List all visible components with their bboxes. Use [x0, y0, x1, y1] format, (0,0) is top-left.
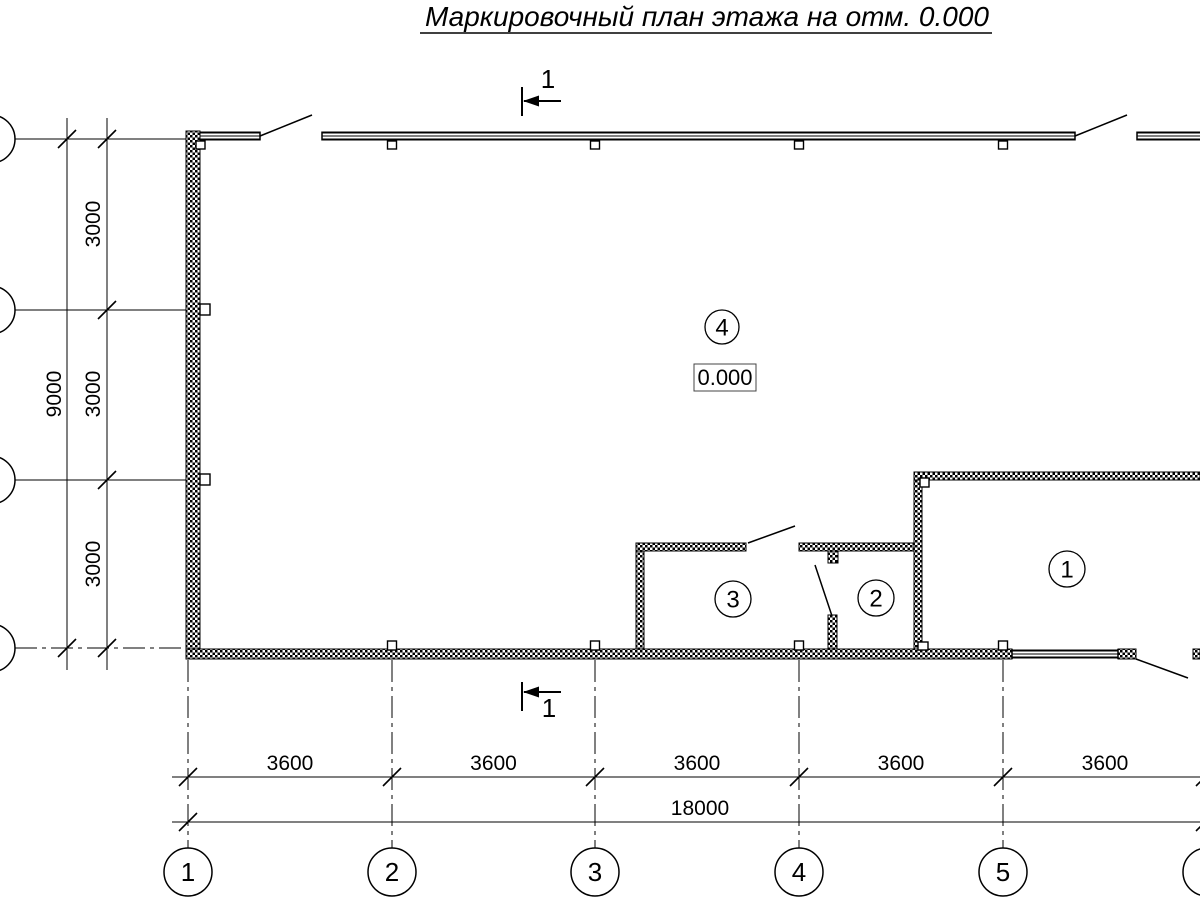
- wall-junction-post: [591, 641, 600, 650]
- room2-wall-top: [799, 543, 914, 551]
- left-dimensions: 3000 3000 3000 9000: [43, 118, 116, 670]
- door-jamb-lower: [828, 615, 837, 649]
- wall-junction-post: [200, 304, 210, 315]
- room-number: 1: [1060, 557, 1073, 584]
- bottom-window: [1012, 649, 1118, 659]
- room1-wall-top: [914, 472, 1200, 480]
- floor-plan-canvas: Маркировочный план этажа на отм. 0.000 3…: [0, 0, 1200, 900]
- wall-junction-post: [999, 641, 1008, 650]
- elevation-mark: 0.000: [694, 364, 756, 391]
- drawing-title: Маркировочный план этажа на отм. 0.000: [420, 1, 992, 33]
- wall-junction-post: [920, 478, 929, 487]
- column-axis-number: 2: [385, 857, 399, 887]
- room-number: 2: [869, 586, 882, 613]
- wall-junction-post: [388, 641, 397, 650]
- room2-door-leaf: [815, 565, 832, 616]
- entry-wall-sliver: [1193, 649, 1200, 659]
- entry-wall-pier: [1118, 649, 1136, 659]
- section-arrowhead-icon: [523, 687, 539, 698]
- mullion-post: [795, 141, 804, 149]
- dim-label-3000: 3000: [82, 371, 105, 418]
- dim-label-9000: 9000: [43, 371, 66, 418]
- wall-junction-post: [918, 642, 928, 650]
- dim-label-18000: 18000: [671, 797, 729, 820]
- walls: [186, 131, 1200, 659]
- posts: [196, 141, 1008, 650]
- opened-casement-leaf: [260, 115, 312, 136]
- room3-wall-left: [636, 543, 644, 649]
- room3-door-leaf: [748, 526, 795, 543]
- opened-casement-leaf: [1075, 115, 1127, 136]
- dim-label-3000: 3000: [82, 541, 105, 588]
- wall-junction-post: [200, 474, 210, 485]
- column-axis-number: 4: [792, 857, 806, 887]
- dim-label-3600: 3600: [1082, 752, 1129, 775]
- dim-label-3600: 3600: [674, 752, 721, 775]
- dim-label-3600: 3600: [470, 752, 517, 775]
- mullion-post: [999, 141, 1008, 149]
- row-axis-bubble: [0, 624, 15, 672]
- room-number: 4: [715, 315, 728, 342]
- row-axis-bubble: [0, 286, 15, 334]
- column-axis-bubble: [1183, 848, 1200, 896]
- entry-door-leaf: [1136, 659, 1188, 678]
- page-title: Маркировочный план этажа на отм. 0.000: [425, 1, 989, 32]
- section-mark-top: 1: [522, 64, 561, 116]
- room-labels: 4 3 2 1: [705, 310, 1085, 617]
- dim-label-3000: 3000: [82, 201, 105, 248]
- dim-label-3600: 3600: [878, 752, 925, 775]
- section-label: 1: [542, 693, 556, 723]
- mullion-post: [388, 141, 397, 149]
- dim-label-3600: 3600: [267, 752, 314, 775]
- room1-wall-left: [914, 472, 922, 649]
- room3-wall-top: [636, 543, 746, 551]
- column-axis-number: 5: [996, 857, 1010, 887]
- row-axis-bubble: [0, 115, 15, 163]
- mullion-post: [196, 141, 205, 149]
- wall-junction-post: [795, 641, 804, 650]
- section-label: 1: [541, 64, 555, 94]
- exterior-wall-left: [186, 131, 200, 659]
- top-glazing: [200, 115, 1200, 141]
- column-axis-number: 1: [181, 857, 195, 887]
- section-arrowhead-icon: [523, 96, 539, 107]
- column-axis-number: 3: [588, 857, 602, 887]
- room-number: 3: [726, 587, 739, 614]
- section-mark-bottom: 1: [522, 682, 561, 723]
- mullion-post: [591, 141, 600, 149]
- bottom-dimensions: 3600 3600 3600 3600 3600 18000: [172, 660, 1200, 848]
- row-axis-bubble: [0, 456, 15, 504]
- door-jamb-upper: [828, 551, 838, 563]
- column-axes: 1 2 3 4 5 6: [164, 848, 1200, 896]
- elevation-value: 0.000: [697, 365, 752, 390]
